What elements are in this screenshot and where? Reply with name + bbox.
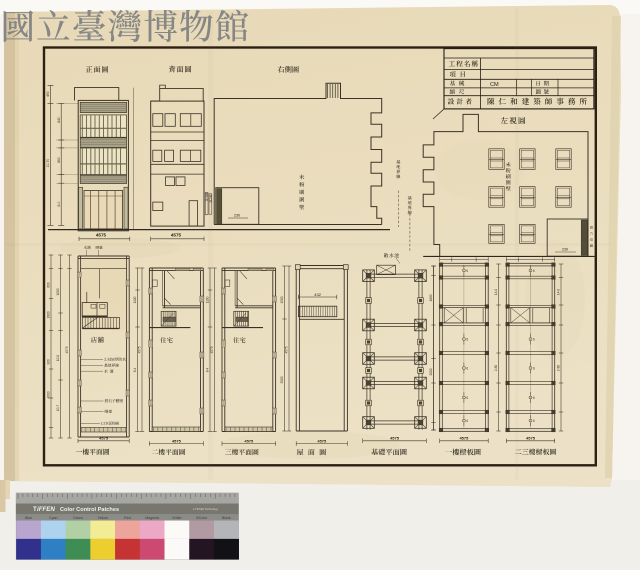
svg-text:600: 600 [46, 282, 50, 288]
svg-text:6: 6 [466, 366, 468, 370]
svg-text:432: 432 [314, 292, 321, 297]
svg-text:Black: Black [222, 516, 231, 520]
svg-text:2-80: 2-80 [494, 365, 498, 372]
svg-text:6: 6 [466, 269, 468, 273]
svg-text:4575: 4575 [137, 346, 141, 353]
svg-text:1000: 1000 [56, 288, 60, 295]
svg-text:1500: 1500 [280, 296, 284, 303]
svg-text:8-0: 8-0 [57, 201, 61, 206]
svg-text:6: 6 [533, 419, 535, 423]
svg-text:6: 6 [466, 419, 468, 423]
svg-text:14-0: 14-0 [494, 289, 498, 296]
svg-text:4000: 4000 [46, 391, 50, 398]
svg-text:Blue: Blue [25, 516, 32, 520]
svg-text:4575: 4575 [459, 436, 469, 441]
svg-text:3000: 3000 [280, 376, 284, 383]
svg-text:10-0: 10-0 [56, 355, 60, 362]
svg-text:4575: 4575 [96, 232, 107, 237]
svg-text:4575: 4575 [284, 346, 288, 353]
svg-text:10-7: 10-7 [56, 405, 60, 412]
svg-text:6: 6 [533, 366, 535, 370]
svg-text:4575: 4575 [171, 232, 182, 237]
svg-text:4575: 4575 [172, 438, 182, 443]
svg-text:Cyan: Cyan [49, 516, 57, 520]
svg-text:860: 860 [57, 157, 61, 163]
svg-text:1800: 1800 [429, 294, 433, 301]
svg-text:White: White [172, 516, 181, 520]
svg-text:Yellow: Yellow [98, 516, 109, 520]
svg-text:CM: CM [490, 82, 499, 88]
svg-text:900: 900 [46, 359, 50, 365]
svg-text:Red: Red [124, 516, 131, 520]
svg-text:6: 6 [466, 338, 468, 342]
svg-text:Green: Green [73, 516, 83, 520]
svg-text:1800: 1800 [46, 311, 50, 318]
svg-text:6: 6 [533, 396, 535, 400]
svg-text:iFFEN: iFFEN [37, 506, 55, 513]
svg-text:10-70: 10-70 [46, 159, 50, 168]
svg-text:8-4: 8-4 [133, 367, 137, 372]
svg-text:a TIFFEN Technology: a TIFFEN Technology [193, 507, 219, 511]
svg-text:840: 840 [57, 117, 61, 123]
svg-text:3/Color: 3/Color [196, 516, 208, 520]
svg-text:4575: 4575 [526, 436, 536, 441]
svg-text:1100: 1100 [133, 296, 137, 303]
svg-text:230: 230 [234, 214, 240, 218]
svg-text:490: 490 [46, 91, 50, 97]
svg-text:4575: 4575 [65, 346, 69, 353]
svg-text:2-80: 2-80 [556, 365, 560, 372]
svg-text:2000: 2000 [429, 368, 433, 375]
svg-text:Color Control Patches: Color Control Patches [60, 507, 119, 513]
svg-text:Magenta: Magenta [145, 516, 159, 520]
svg-text:6: 6 [466, 396, 468, 400]
svg-text:4575: 4575 [99, 436, 109, 441]
